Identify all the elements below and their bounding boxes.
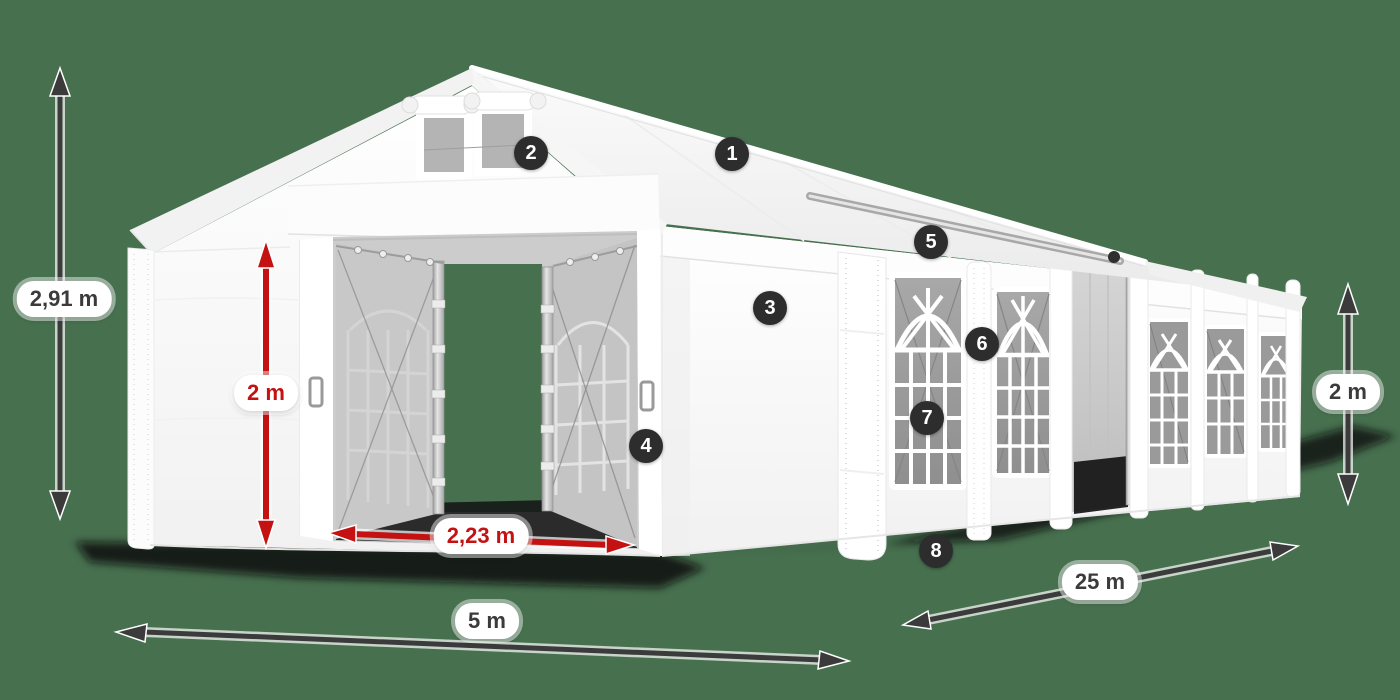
callout-badge-4-number: 4 — [640, 435, 651, 458]
tent-product-diagram: 1 2 3 4 5 6 7 8 2,91 m 2 m 2,23 m 5 m 25… — [0, 0, 1400, 700]
side-door-opening — [1072, 256, 1133, 514]
callout-badge-7[interactable]: 7 — [910, 401, 944, 435]
dimension-label-front-width: 5 m — [455, 603, 519, 639]
dimension-label-side-length: 25 m — [1062, 564, 1138, 600]
dimension-label-total-height: 2,91 m — [17, 281, 112, 317]
callout-badge-2[interactable]: 2 — [514, 136, 548, 170]
callout-badge-8[interactable]: 8 — [919, 534, 953, 568]
callout-badge-6[interactable]: 6 — [965, 327, 999, 361]
callout-badge-5[interactable]: 5 — [914, 225, 948, 259]
callout-badge-3-number: 3 — [764, 297, 775, 320]
callout-badge-5-number: 5 — [925, 231, 936, 254]
callout-badge-1-number: 1 — [726, 143, 737, 166]
callout-badge-1[interactable]: 1 — [715, 137, 749, 171]
dimension-label-door-height: 2 m — [234, 375, 298, 411]
dimension-label-side-height: 2 m — [1316, 374, 1380, 410]
front-door-opening — [333, 231, 639, 549]
dimension-label-door-width: 2,23 m — [434, 518, 529, 554]
callout-badge-4[interactable]: 4 — [629, 429, 663, 463]
callout-badge-2-number: 2 — [525, 142, 536, 165]
callout-badge-3[interactable]: 3 — [753, 291, 787, 325]
tent-illustration — [0, 0, 1400, 700]
callout-badge-8-number: 8 — [930, 540, 941, 563]
callout-badge-7-number: 7 — [921, 407, 932, 430]
callout-badge-6-number: 6 — [976, 333, 987, 356]
